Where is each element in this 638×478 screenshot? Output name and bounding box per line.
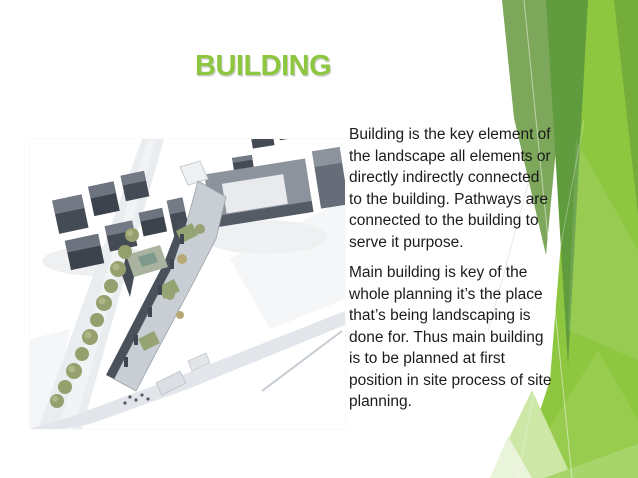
body-paragraph-2: Main building is key of the whole planni…: [349, 262, 599, 413]
rendering-svg: [30, 139, 345, 429]
building-rendering-image: [30, 139, 345, 429]
slide-title: BUILDING: [195, 50, 331, 83]
presentation-slide: BUILDING: [0, 0, 638, 478]
body-text-block: Building is the key element of the lands…: [349, 124, 599, 422]
body-paragraph-1: Building is the key element of the lands…: [349, 124, 599, 253]
